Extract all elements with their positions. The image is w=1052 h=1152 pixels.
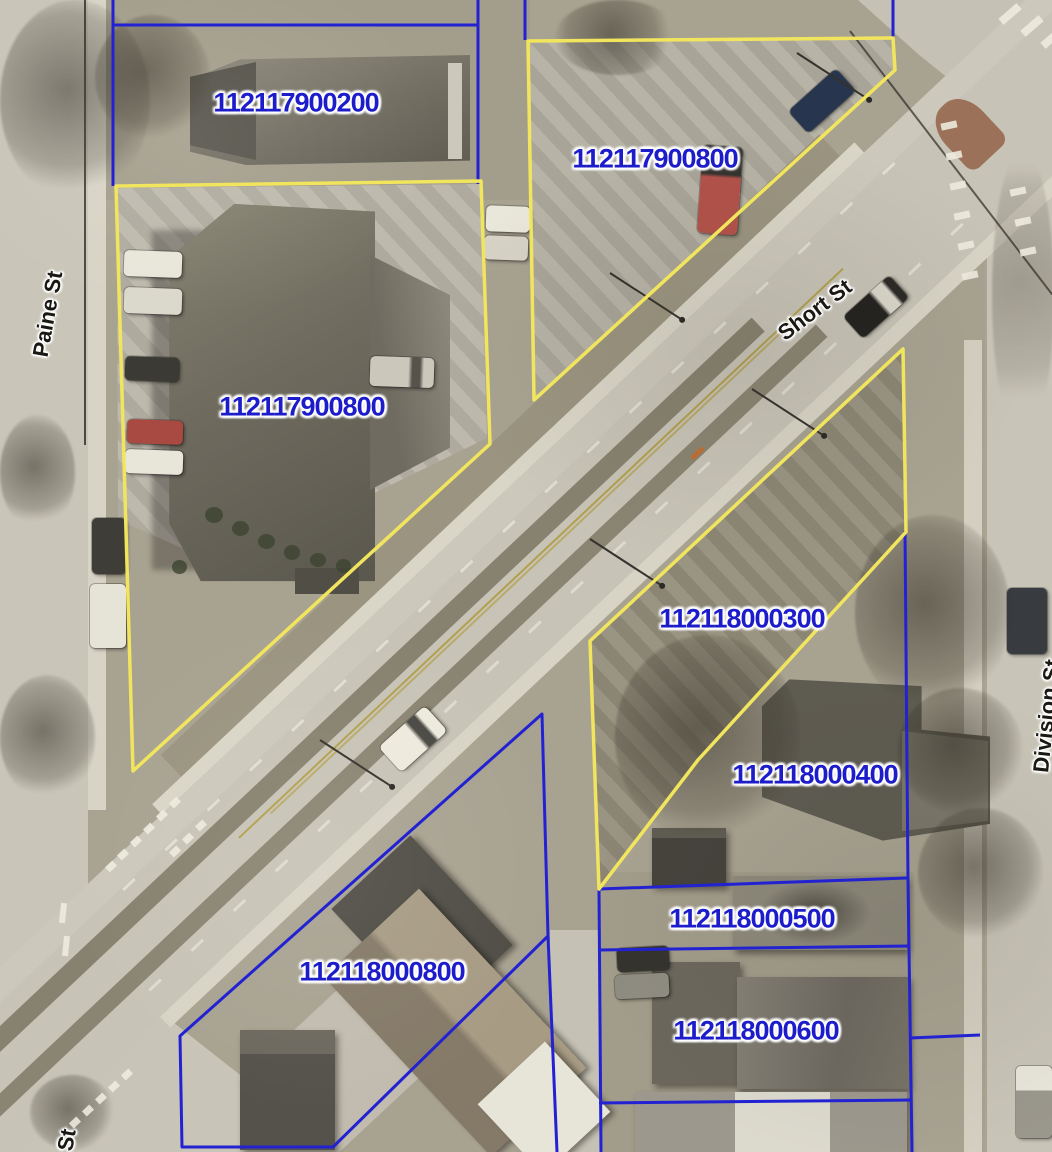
tree bbox=[898, 688, 1023, 813]
parked-car bbox=[125, 449, 184, 475]
tree bbox=[855, 515, 1010, 710]
shrub bbox=[172, 560, 187, 574]
box-truck bbox=[1016, 1066, 1052, 1138]
parked-car bbox=[127, 419, 184, 445]
parcel-label: 112117900200 bbox=[213, 88, 378, 119]
roof-edge bbox=[448, 63, 462, 159]
tree bbox=[615, 635, 800, 840]
parked-car bbox=[124, 287, 183, 315]
parked-car bbox=[369, 356, 434, 388]
parked-car bbox=[125, 356, 180, 382]
shrub bbox=[310, 553, 326, 567]
parcel-label: 112118000400 bbox=[732, 760, 897, 791]
parked-car bbox=[614, 973, 669, 1000]
parked-car bbox=[486, 205, 531, 233]
car-on-road bbox=[1007, 588, 1047, 654]
aerial-parcel-map[interactable]: 112117900200 112117900800 112117900800 1… bbox=[0, 0, 1052, 1152]
tree bbox=[918, 808, 1043, 938]
building-roof bbox=[240, 1030, 335, 1150]
shrub bbox=[258, 534, 275, 549]
parcel-label: 112118000500 bbox=[669, 904, 834, 935]
shrub bbox=[232, 521, 249, 536]
parked-car bbox=[92, 518, 126, 574]
tree bbox=[555, 0, 680, 75]
parcel-boundary-west[interactable] bbox=[599, 889, 601, 1152]
tree bbox=[0, 675, 95, 800]
parked-car bbox=[90, 584, 126, 648]
parked-car bbox=[484, 235, 529, 261]
parcel-label: 112117900800 bbox=[219, 392, 384, 423]
parcel-label: 112118000300 bbox=[659, 604, 824, 635]
shrub bbox=[205, 507, 223, 523]
parcel-label: 112118000600 bbox=[673, 1016, 838, 1047]
parcel-label: 112117900800 bbox=[572, 144, 737, 175]
tree bbox=[0, 415, 75, 530]
parcel-label: 112118000800 bbox=[299, 957, 464, 988]
parked-car bbox=[124, 250, 183, 278]
street-label-partial: St bbox=[52, 1127, 81, 1152]
shrub bbox=[284, 545, 300, 560]
shrub bbox=[336, 559, 351, 573]
